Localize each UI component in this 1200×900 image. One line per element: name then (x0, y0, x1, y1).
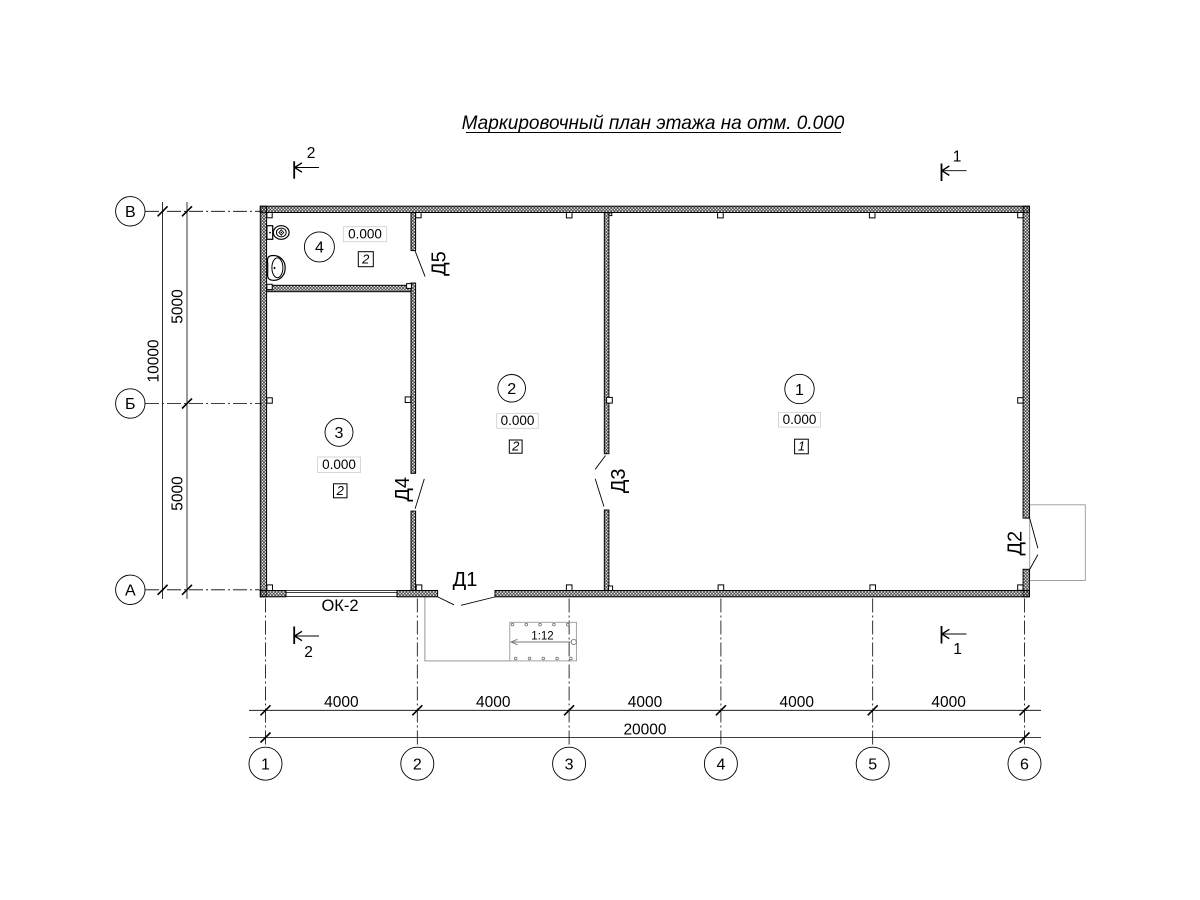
svg-text:4: 4 (315, 240, 324, 257)
svg-text:В: В (125, 204, 136, 221)
svg-text:2: 2 (507, 381, 516, 398)
svg-text:4: 4 (716, 757, 725, 774)
svg-text:Д2: Д2 (1005, 531, 1027, 556)
svg-text:Д5: Д5 (428, 251, 450, 276)
svg-text:ОК-2: ОК-2 (321, 597, 358, 615)
svg-text:1:12: 1:12 (531, 631, 553, 643)
svg-text:Б: Б (125, 396, 136, 413)
svg-text:А: А (125, 583, 136, 600)
svg-text:0.000: 0.000 (501, 413, 535, 428)
svg-text:2: 2 (304, 644, 313, 661)
svg-text:4000: 4000 (476, 694, 511, 711)
svg-text:5: 5 (868, 757, 877, 774)
svg-text:2: 2 (361, 252, 370, 267)
svg-text:2: 2 (307, 145, 316, 162)
svg-text:10000: 10000 (146, 339, 163, 382)
svg-text:1: 1 (953, 148, 962, 165)
svg-text:Маркировочный план этажа на от: Маркировочный план этажа на отм. 0.000 (462, 113, 845, 134)
svg-text:4000: 4000 (931, 694, 966, 711)
svg-text:3: 3 (335, 425, 344, 442)
svg-text:Д4: Д4 (392, 477, 414, 502)
svg-text:6: 6 (1020, 757, 1029, 774)
svg-text:1: 1 (953, 641, 962, 658)
svg-text:1: 1 (795, 382, 804, 399)
svg-text:3: 3 (565, 757, 574, 774)
svg-text:4000: 4000 (628, 694, 663, 711)
svg-text:4000: 4000 (780, 694, 815, 711)
svg-text:4000: 4000 (324, 694, 359, 711)
svg-text:0.000: 0.000 (348, 227, 382, 242)
svg-text:20000: 20000 (623, 722, 666, 739)
svg-text:5000: 5000 (170, 289, 187, 324)
svg-text:1: 1 (261, 757, 270, 774)
svg-text:2: 2 (511, 439, 520, 454)
svg-text:2: 2 (336, 483, 345, 498)
svg-text:0.000: 0.000 (322, 457, 356, 472)
svg-text:0.000: 0.000 (783, 412, 817, 427)
svg-text:1: 1 (798, 439, 805, 454)
svg-text:Д3: Д3 (608, 468, 630, 493)
svg-text:2: 2 (413, 757, 422, 774)
svg-text:Д1: Д1 (453, 569, 478, 591)
svg-text:5000: 5000 (170, 476, 187, 511)
